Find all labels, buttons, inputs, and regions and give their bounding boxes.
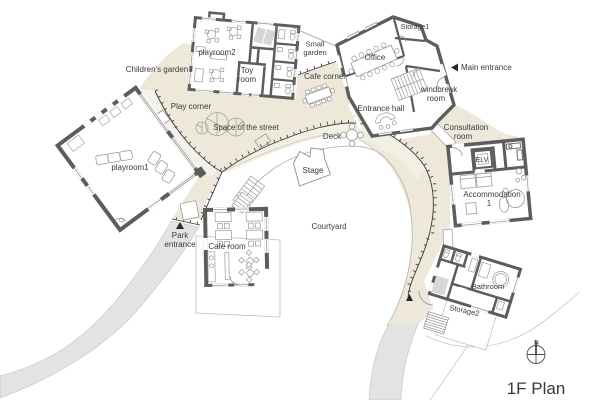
svg-text:Toy: Toy	[241, 66, 253, 75]
svg-text:Play corner: Play corner	[171, 102, 212, 111]
svg-text:windbreak: windbreak	[420, 85, 458, 94]
svg-text:room: room	[427, 94, 446, 103]
svg-text:Bathroom: Bathroom	[472, 282, 505, 291]
svg-text:ELV: ELV	[476, 157, 489, 164]
svg-text:Accommodation: Accommodation	[463, 190, 520, 199]
svg-text:garden: garden	[303, 48, 326, 57]
svg-text:Children's garden: Children's garden	[126, 65, 188, 74]
svg-text:Consultation: Consultation	[444, 123, 488, 132]
svg-text:Space of the street: Space of the street	[213, 123, 279, 132]
svg-text:Storage1: Storage1	[401, 24, 430, 31]
svg-text:room: room	[238, 75, 257, 84]
svg-text:Deck: Deck	[323, 132, 342, 141]
svg-text:room: room	[454, 132, 473, 141]
svg-text:N: N	[534, 340, 539, 347]
svg-text:Office: Office	[365, 53, 386, 62]
svg-text:Courtyard: Courtyard	[311, 222, 346, 231]
svg-text:entrance: entrance	[164, 240, 196, 249]
svg-text:Park: Park	[172, 231, 189, 240]
svg-text:Entrance hall: Entrance hall	[358, 104, 405, 113]
svg-text:Stage: Stage	[303, 166, 324, 175]
svg-text:Cafe corner: Cafe corner	[304, 72, 346, 81]
svg-text:1: 1	[487, 199, 492, 208]
svg-text:playroom2: playroom2	[198, 48, 236, 57]
svg-text:Cafe room: Cafe room	[208, 242, 246, 251]
svg-text:Main entrance: Main entrance	[461, 63, 512, 72]
svg-text:playroom1: playroom1	[111, 163, 149, 172]
svg-text:1F Plan: 1F Plan	[507, 379, 566, 398]
